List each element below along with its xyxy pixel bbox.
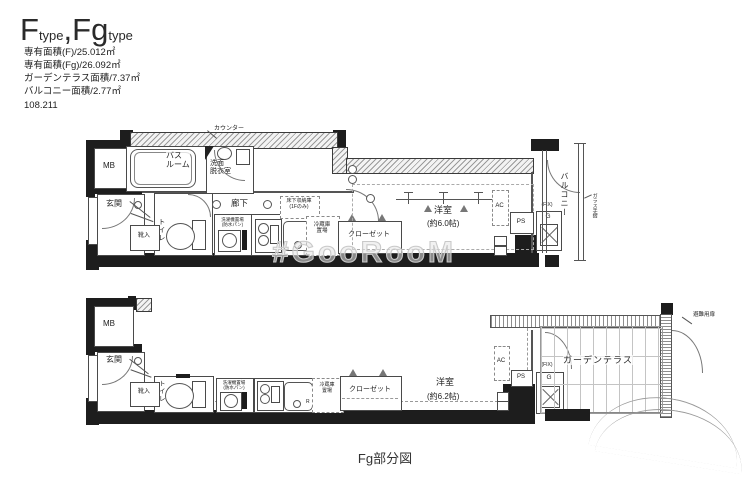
ceiling-light-icon (212, 200, 221, 209)
fix-window-label: (FIX) (536, 203, 558, 209)
evacuation-door-label: 避難用扉 (693, 312, 715, 318)
mb-label: MB (103, 162, 115, 171)
ceiling-light-icon (366, 194, 375, 203)
glass-rail-label: ガラス手摺 (591, 193, 597, 237)
area-line-terrace: ガーデンテラス面積/7.37㎡ (24, 70, 140, 84)
burner-icon (260, 394, 270, 404)
page-title: F type , Fg type (20, 12, 133, 48)
title-type1: type (39, 28, 64, 43)
wall-segment (176, 374, 190, 378)
room-size-label: (約6.0帖) (427, 220, 459, 229)
toilet-bowl-icon (166, 223, 195, 250)
hanger-mark-icon (349, 369, 357, 376)
bathroom-label: バスルーム (166, 152, 190, 170)
fridge-label: 冷蔵庫置場 (306, 222, 338, 234)
title-fg: Fg (72, 12, 108, 48)
hall-label: 廊下 (231, 199, 248, 209)
ps-label: PS (511, 374, 531, 381)
room-label: 洋室 (436, 377, 454, 387)
washer-drum-icon (224, 394, 238, 408)
room-label: 洋室 (434, 205, 452, 215)
washer-drum-icon (222, 233, 237, 248)
hanger-mark-icon (379, 369, 387, 376)
pole-support-icon (424, 205, 432, 212)
gate-swing-arc (672, 330, 703, 373)
faucet-icon (293, 400, 301, 408)
washer-panel-icon (242, 230, 247, 250)
watermark: #GooRooM (272, 236, 456, 270)
laundry-pole-icon (396, 199, 496, 200)
laundry-label: 洗濯機置場(防水パン) (216, 380, 252, 390)
ps-label: PS (510, 218, 532, 225)
plan-code: 108.211 (24, 100, 58, 111)
grill-icon (271, 386, 280, 403)
title-f: F (20, 12, 39, 48)
window-wall-line (542, 150, 547, 253)
hatched-wall (346, 158, 534, 174)
counter-callout: カウンター (214, 126, 244, 133)
door-pivot-mark (205, 146, 214, 160)
plan-caption: Fg部分図 (330, 452, 440, 467)
balcony-label: バルコニー (559, 172, 568, 236)
railing-line (583, 144, 584, 260)
toilet-tank-icon (192, 381, 206, 408)
closet-label: クローゼット (340, 386, 400, 394)
pole-hanger-icon (478, 192, 479, 204)
equipment-box (494, 246, 507, 256)
equipment-box (497, 401, 509, 411)
r-label: R (306, 400, 310, 406)
burner-icon (258, 235, 269, 246)
underfloor-label: 床下収納庫(1Fのみ) (280, 199, 318, 210)
pole-support-icon (460, 205, 468, 212)
area-line-balcony: バルコニー面積/2.77㎡ (24, 83, 121, 97)
laundry-label: 洗濯機置場(防水パン) (214, 217, 251, 227)
railing-line (574, 260, 586, 261)
railing-line (574, 143, 586, 144)
ceiling-light-icon (263, 200, 272, 209)
shoe-cabinet-label: 靴入 (130, 389, 158, 396)
wall-segment (545, 255, 559, 267)
area-line-fg: 専有面積(Fg)/26.092㎡ (24, 57, 121, 71)
floorplan-page: F type , Fg type 専有面積(F)/25.012㎡ 専有面積(Fg… (0, 0, 751, 494)
burner-icon (258, 223, 269, 234)
ac-label: AC (491, 203, 508, 210)
ac-label: AC (493, 358, 509, 365)
mb-label: MB (103, 320, 115, 329)
wall-segment (545, 409, 590, 421)
area-line-f: 専有面積(F)/25.012㎡ (24, 44, 115, 58)
burner-icon (260, 384, 270, 394)
terrace-label: ガーデンテラス (563, 355, 633, 365)
shoe-cabinet-label: 靴入 (130, 233, 158, 240)
callout-leader-line (682, 317, 692, 325)
pole-hanger-icon (408, 192, 409, 204)
hatched-wall (136, 298, 152, 312)
fridge-label: 冷蔵庫置場 (312, 383, 342, 394)
title-type2: type (108, 28, 133, 43)
toilet-bowl-icon (165, 383, 194, 409)
room-size-label: (約6.2帖) (427, 393, 459, 402)
closet-dashed-line (342, 398, 398, 399)
vent-icon (348, 165, 357, 174)
pole-hanger-icon (443, 192, 444, 204)
vent-icon (348, 175, 357, 184)
title-sep: , (64, 12, 73, 48)
washer-panel-icon (242, 392, 247, 409)
railing-line (578, 144, 579, 260)
equipment-box (494, 236, 507, 246)
g-label: G (536, 213, 560, 220)
